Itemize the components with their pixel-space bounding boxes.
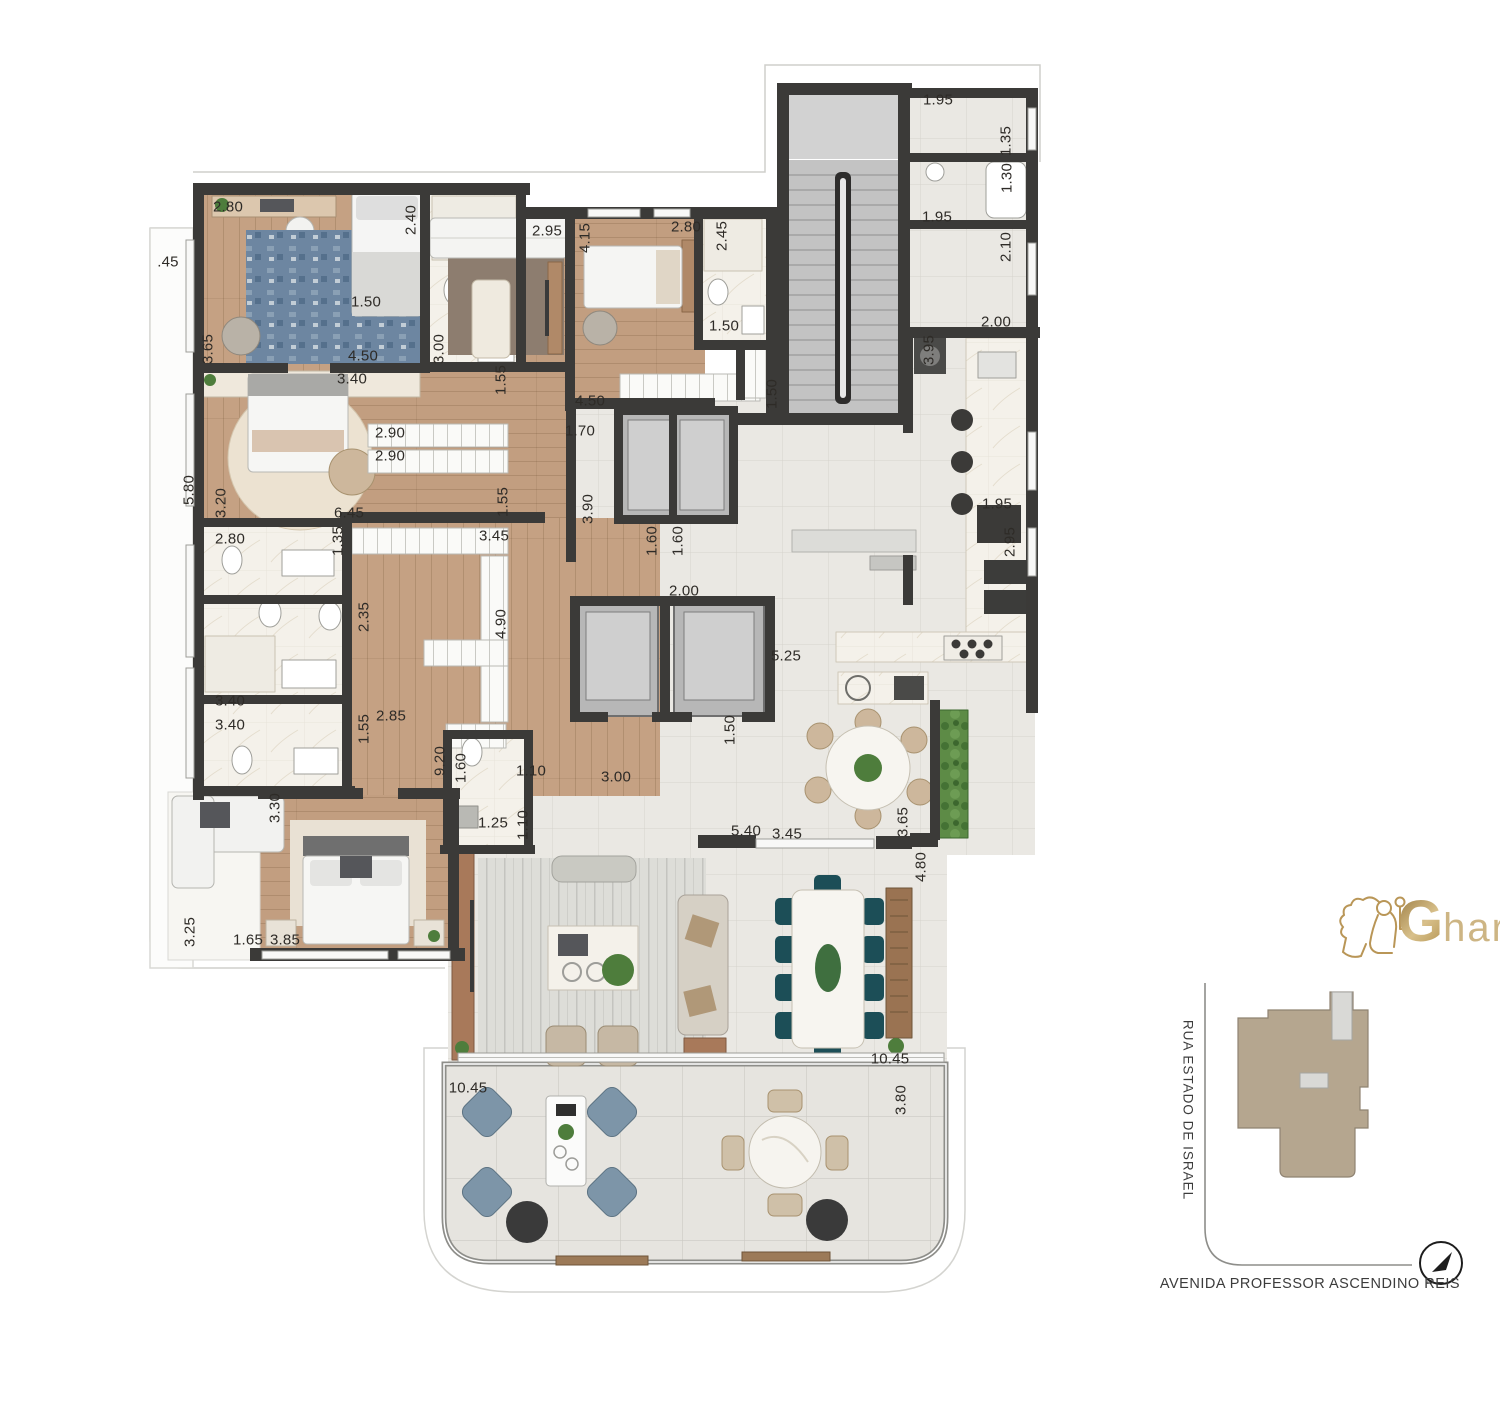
- floor-plan-drawing: [0, 0, 1500, 1421]
- staircase: [789, 95, 898, 415]
- living-room-furniture: [452, 850, 728, 1066]
- compass-north-label: N: [1427, 1279, 1432, 1286]
- brand-logo-rest: har: [1443, 908, 1500, 948]
- lobby-console: [792, 530, 916, 552]
- site-map: [1205, 983, 1462, 1284]
- master-bedroom-furniture: [266, 820, 444, 946]
- brand-logo: Ghar: [1398, 896, 1500, 948]
- street-name-left: RUA ESTADO DE ISRAEL: [1181, 1020, 1196, 1200]
- lion-icon: [1340, 897, 1406, 956]
- floor-plan-page: .452.802.402.954.152.802.451.951.351.301…: [0, 0, 1500, 1421]
- dining-set: [775, 875, 912, 1062]
- vertical-garden: [938, 710, 968, 838]
- brand-logo-g: G: [1398, 896, 1443, 948]
- street-name-bottom: AVENIDA PROFESSOR ASCENDINO REIS: [1160, 1276, 1460, 1292]
- tv-room-furniture: [430, 218, 568, 358]
